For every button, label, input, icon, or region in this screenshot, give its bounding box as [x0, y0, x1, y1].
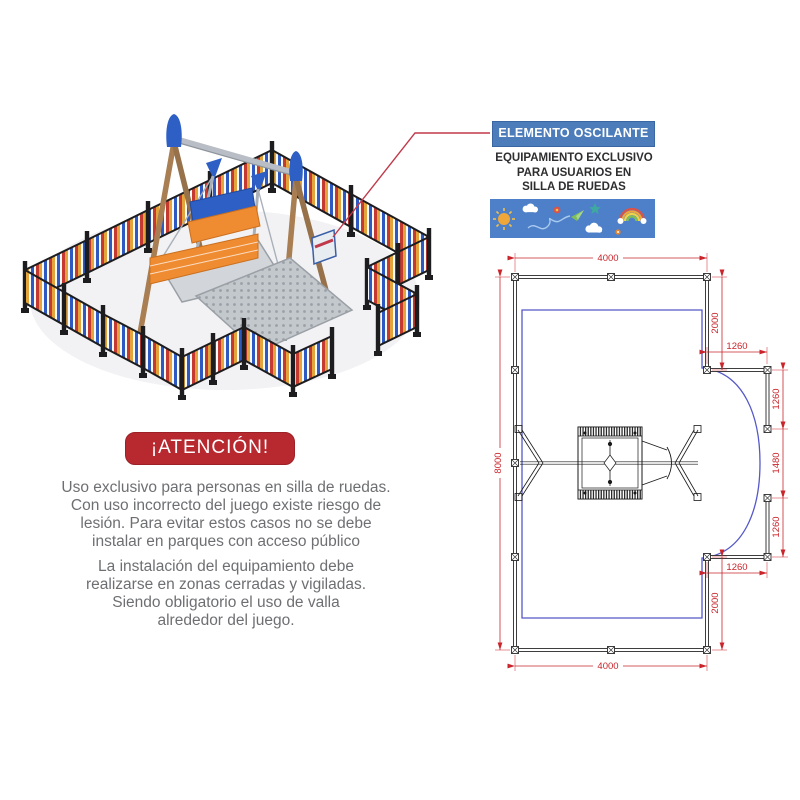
note-line: PARA USUARIOS EN — [478, 166, 670, 181]
flower-icon — [615, 229, 620, 234]
banner-elemento-oscilante: ELEMENTO OSCILANTE — [492, 121, 655, 147]
fence-rails — [514, 276, 770, 652]
dim-gate-lower: 1260 — [771, 516, 782, 537]
warning-paragraph-2: La instalación del equipamiento debe rea… — [10, 558, 442, 630]
dim-top: 4000 — [597, 253, 618, 264]
dim-chicane-bottom: 1260 — [726, 562, 747, 573]
dim-left: 8000 — [493, 452, 504, 473]
product-sheet-page: ELEMENTO OSCILANTE EQUIPAMIENTO EXCLUSIV… — [0, 0, 800, 800]
note-line: SILLA DE RUEDAS — [478, 180, 670, 195]
warning-line: alrededor del juego. — [10, 612, 442, 630]
exclusive-use-note: EQUIPAMIENTO EXCLUSIVO PARA USUARIOS EN … — [478, 151, 670, 195]
warning-paragraph-1: Uso exclusivo para personas en silla de … — [10, 479, 442, 551]
post-cap — [289, 151, 303, 181]
post-cap — [166, 114, 181, 147]
dim-gate-middle: 1480 — [771, 452, 782, 473]
warning-line: realizarse en zonas cerradas y vigiladas… — [10, 576, 442, 594]
dim-bottom: 4000 — [597, 661, 618, 672]
fence-posts — [512, 274, 772, 654]
doodle-strip — [490, 199, 655, 238]
installation-plan: 4000 8000 2000 1260 1260 1480 1260 1260 … — [490, 245, 800, 680]
warning-line: instalar en parques con acceso público — [10, 533, 442, 551]
warning-line: Siendo obligatorio el uso de valla — [10, 594, 442, 612]
note-line: EQUIPAMIENTO EXCLUSIVO — [478, 151, 670, 166]
warning-line: Uso exclusivo para personas en silla de … — [10, 479, 442, 497]
flower-icon — [554, 207, 561, 214]
attention-ribbon: ¡ATENCIÓN! — [125, 432, 295, 465]
dim-chicane-top: 1260 — [726, 341, 747, 352]
dim-right-lower: 2000 — [710, 592, 721, 613]
warning-line: Con uso incorrecto del juego existe ries… — [10, 497, 442, 515]
swing-isometric-illustration — [0, 80, 500, 430]
warning-line: lesión. Para evitar estos casos no se de… — [10, 515, 442, 533]
warning-line: La instalación del equipamiento debe — [10, 558, 442, 576]
swing-top-view — [515, 426, 701, 501]
dim-right-upper: 2000 — [710, 312, 721, 333]
dim-gate-upper: 1260 — [771, 388, 782, 409]
